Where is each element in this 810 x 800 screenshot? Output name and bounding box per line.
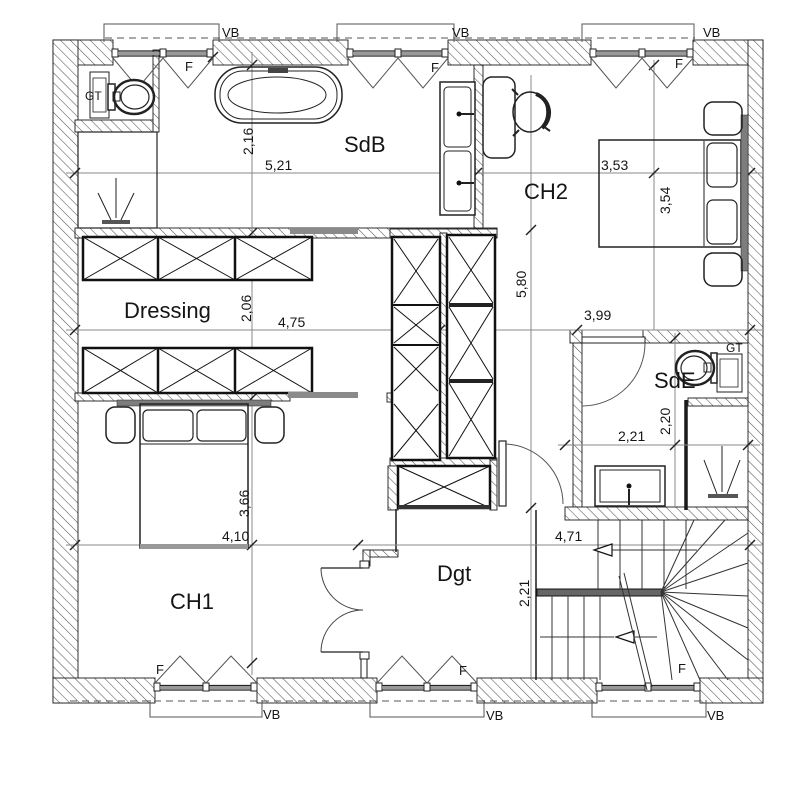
pillow [197, 410, 246, 441]
door-double-ch1 [321, 568, 363, 652]
nightstand-ch2-top [704, 102, 742, 135]
wall-bottom-segment-2 [477, 678, 597, 703]
room-label-ch2: CH2 [524, 179, 568, 204]
dim-dgt-width: 4,71 [555, 528, 582, 544]
toilet-sdb [108, 80, 154, 114]
dim-ch2-height: 3,54 [657, 187, 673, 214]
wall-bottom-segment-1 [257, 678, 377, 703]
bottom-facade [70, 656, 706, 717]
balcony-sill-bottom-1 [150, 700, 262, 717]
bed-foot-bar [140, 544, 248, 549]
desk [483, 77, 515, 158]
door-jamb-top [360, 561, 369, 568]
stairs-winders [661, 520, 748, 680]
shelf-rail-bottom [288, 392, 358, 398]
balcony-label: VB [452, 25, 469, 40]
vanity-double-sink [440, 82, 475, 215]
dim-landing-width: 3,99 [584, 307, 611, 323]
window-label: F [185, 59, 193, 74]
wall-top-segment-1 [213, 40, 348, 65]
bathtub [215, 67, 342, 123]
shower-sde-symbol [704, 446, 740, 498]
ch1-furniture [106, 400, 284, 549]
balcony-sill-bottom-3 [592, 700, 706, 717]
room-label-dressing: Dressing [124, 298, 211, 323]
dim-ch1-width: 4,10 [222, 528, 249, 544]
wall-cabinet-left-strip [388, 466, 398, 510]
wall-sde-left [573, 343, 582, 510]
room-label-sde: SdE [654, 368, 696, 393]
sdb-fixtures [78, 67, 475, 228]
wardrobe-row-bottom [83, 348, 312, 393]
window-label: F [459, 663, 467, 678]
ch2-furniture [483, 77, 748, 286]
room-label-dgt: Dgt [437, 561, 471, 586]
window-label: F [431, 60, 439, 75]
room-label-ch1: CH1 [170, 589, 214, 614]
dim-ch2-width: 3,53 [601, 157, 628, 173]
headboard-ch2 [741, 115, 748, 271]
sink-sde [595, 466, 665, 506]
pillow [143, 410, 193, 441]
nightstand-ch1-right [255, 407, 284, 443]
shelf-rail-top [290, 228, 358, 234]
dim-dressing-width: 4,75 [278, 314, 305, 330]
wall-bottom-right-corner [700, 678, 763, 703]
dim-sde-width: 2,21 [618, 428, 645, 444]
wall-sde-shower-top [688, 398, 748, 406]
bed-ch2 [599, 115, 748, 271]
shower-sdb [78, 132, 157, 228]
balcony-label: VB [222, 25, 239, 40]
balcony-sill-top-2 [337, 24, 454, 42]
window-bottom-3 [596, 683, 700, 691]
balcony-label: VB [486, 708, 503, 723]
nightstand-ch2-bottom [704, 253, 742, 286]
wall-bottom-left-corner [53, 678, 155, 703]
cabinet-stack-right [447, 235, 495, 458]
room-label-sdb: SdB [344, 132, 386, 157]
dim-sdb-height: 2,16 [240, 128, 256, 155]
balcony-label: VB [703, 25, 720, 40]
wall-top-segment-2 [448, 40, 591, 65]
wall-left [53, 40, 78, 703]
balcony-label: VB [263, 707, 280, 722]
door-jamb-bottom [360, 652, 369, 659]
duct-label: GT [726, 341, 743, 355]
stairs-handrail [537, 589, 662, 596]
door-sde [582, 337, 645, 406]
balcony-label: VB [707, 708, 724, 723]
bathtub-faucet [268, 68, 288, 73]
shower-sdb-symbol [98, 178, 134, 224]
window-label: F [675, 56, 683, 71]
floor-plan-drawing: SdB CH2 Dressing SdE CH1 Dgt 2,16 5,21 3… [0, 0, 810, 800]
wall-sde-bottom [565, 507, 748, 520]
top-facade [104, 24, 695, 88]
dim-dgt-height: 2,21 [516, 580, 532, 607]
window-label: F [156, 662, 164, 677]
duct-label: GT [85, 89, 102, 103]
dim-ch1-height: 3,66 [236, 490, 252, 517]
dim-sde-height: 2,20 [657, 408, 673, 435]
pillow [707, 143, 737, 187]
floor-plan-sheet: SdB CH2 Dressing SdE CH1 Dgt 2,16 5,21 3… [0, 0, 810, 800]
wall-wc-niche [75, 120, 158, 132]
dim-center-height: 5,80 [513, 271, 529, 298]
window-label: F [678, 661, 686, 676]
wall-below-double-door [361, 659, 367, 678]
wall-right [748, 40, 763, 703]
balcony-sill-bottom-2 [370, 700, 484, 717]
dim-sdb-width: 5,21 [265, 157, 292, 173]
window-bottom-1 [154, 656, 257, 691]
balcony-sill-top-1 [104, 24, 219, 42]
balcony-sill-top-3 [582, 24, 694, 42]
pillow [707, 200, 737, 244]
nightstand-ch1-left [106, 407, 135, 443]
dim-dressing-height: 2,06 [238, 295, 254, 322]
